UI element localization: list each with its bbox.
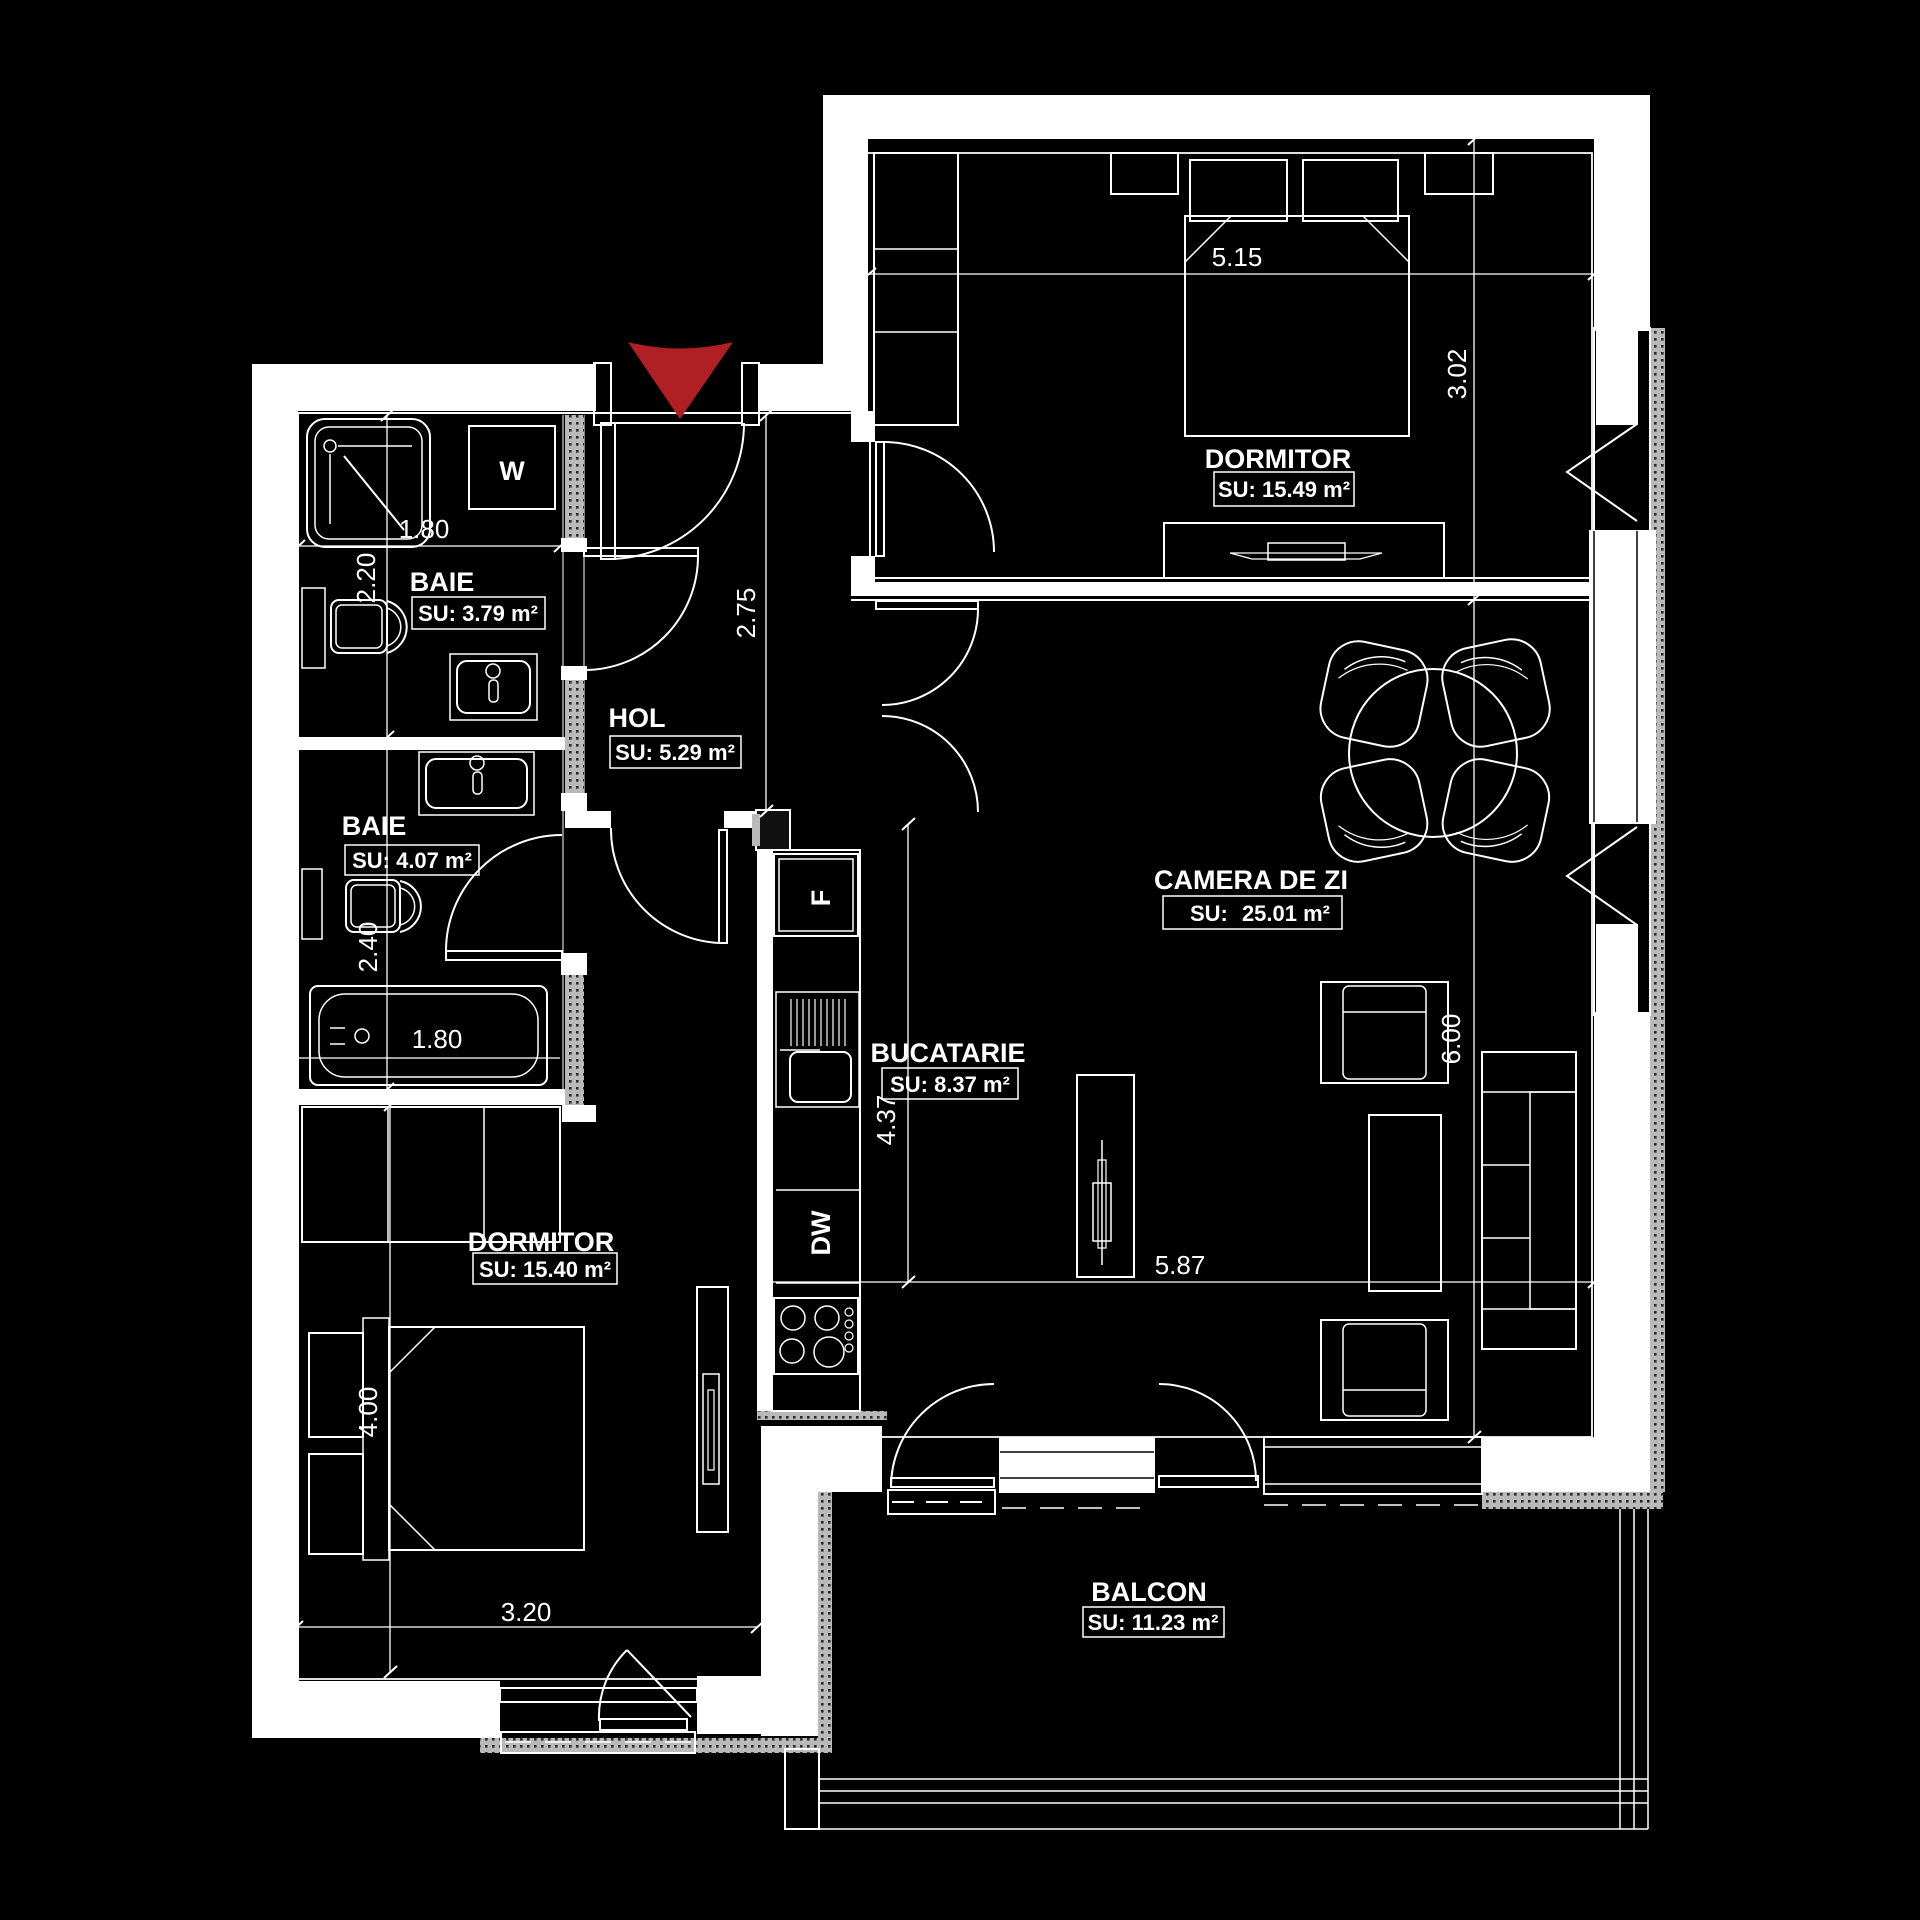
svg-text:1.80: 1.80 bbox=[399, 514, 450, 544]
svg-text:SU: 11.23 m²: SU: 11.23 m² bbox=[1088, 1610, 1219, 1635]
svg-text:BAIE: BAIE bbox=[410, 567, 475, 597]
svg-text:3.20: 3.20 bbox=[501, 1597, 552, 1627]
svg-text:SU: 5.29 m²: SU: 5.29 m² bbox=[615, 740, 735, 765]
svg-text:5.87: 5.87 bbox=[1155, 1250, 1206, 1280]
svg-text:6.00: 6.00 bbox=[1436, 1014, 1466, 1065]
svg-text:4.00: 4.00 bbox=[353, 1387, 383, 1438]
svg-text:F: F bbox=[806, 890, 836, 907]
svg-text:2.75: 2.75 bbox=[731, 588, 761, 639]
svg-text:25.01 m²: 25.01 m² bbox=[1242, 901, 1330, 926]
svg-text:SU:: SU: bbox=[1190, 901, 1228, 926]
svg-text:W: W bbox=[499, 456, 525, 486]
svg-text:BAIE: BAIE bbox=[342, 811, 407, 841]
svg-text:SU: 4.07 m²: SU: 4.07 m² bbox=[352, 848, 472, 873]
svg-text:2.20: 2.20 bbox=[351, 553, 381, 604]
svg-text:HOL: HOL bbox=[609, 703, 666, 733]
svg-text:3.02: 3.02 bbox=[1442, 349, 1472, 400]
svg-text:BALCON: BALCON bbox=[1091, 1577, 1207, 1607]
svg-text:5.15: 5.15 bbox=[1212, 242, 1263, 272]
svg-text:DW: DW bbox=[806, 1210, 836, 1255]
svg-text:SU: 15.40 m²: SU: 15.40 m² bbox=[479, 1257, 611, 1282]
svg-text:SU: 3.79 m²: SU: 3.79 m² bbox=[418, 601, 538, 626]
svg-text:1.80: 1.80 bbox=[412, 1024, 463, 1054]
svg-text:SU: 15.49 m²: SU: 15.49 m² bbox=[1218, 477, 1350, 502]
svg-text:DORMITOR: DORMITOR bbox=[1205, 444, 1352, 474]
svg-text:CAMERA DE ZI: CAMERA DE ZI bbox=[1154, 865, 1348, 895]
svg-text:SU: 8.37 m²: SU: 8.37 m² bbox=[890, 1072, 1010, 1097]
svg-text:BUCATARIE: BUCATARIE bbox=[871, 1038, 1026, 1068]
svg-text:2.40: 2.40 bbox=[353, 922, 383, 973]
svg-text:4.37: 4.37 bbox=[871, 1095, 901, 1146]
